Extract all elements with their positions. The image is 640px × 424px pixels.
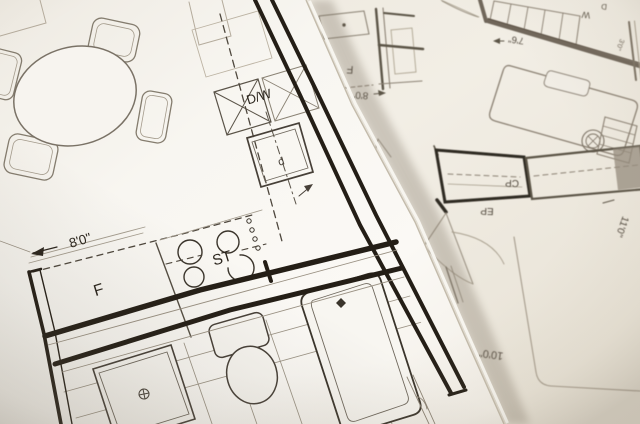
corner-shade — [0, 0, 640, 424]
blueprint-scene: F 8'0" W D 7'6" 3'0" — [0, 0, 640, 424]
blueprint-photo: F 8'0" W D 7'6" 3'0" — [0, 0, 640, 424]
